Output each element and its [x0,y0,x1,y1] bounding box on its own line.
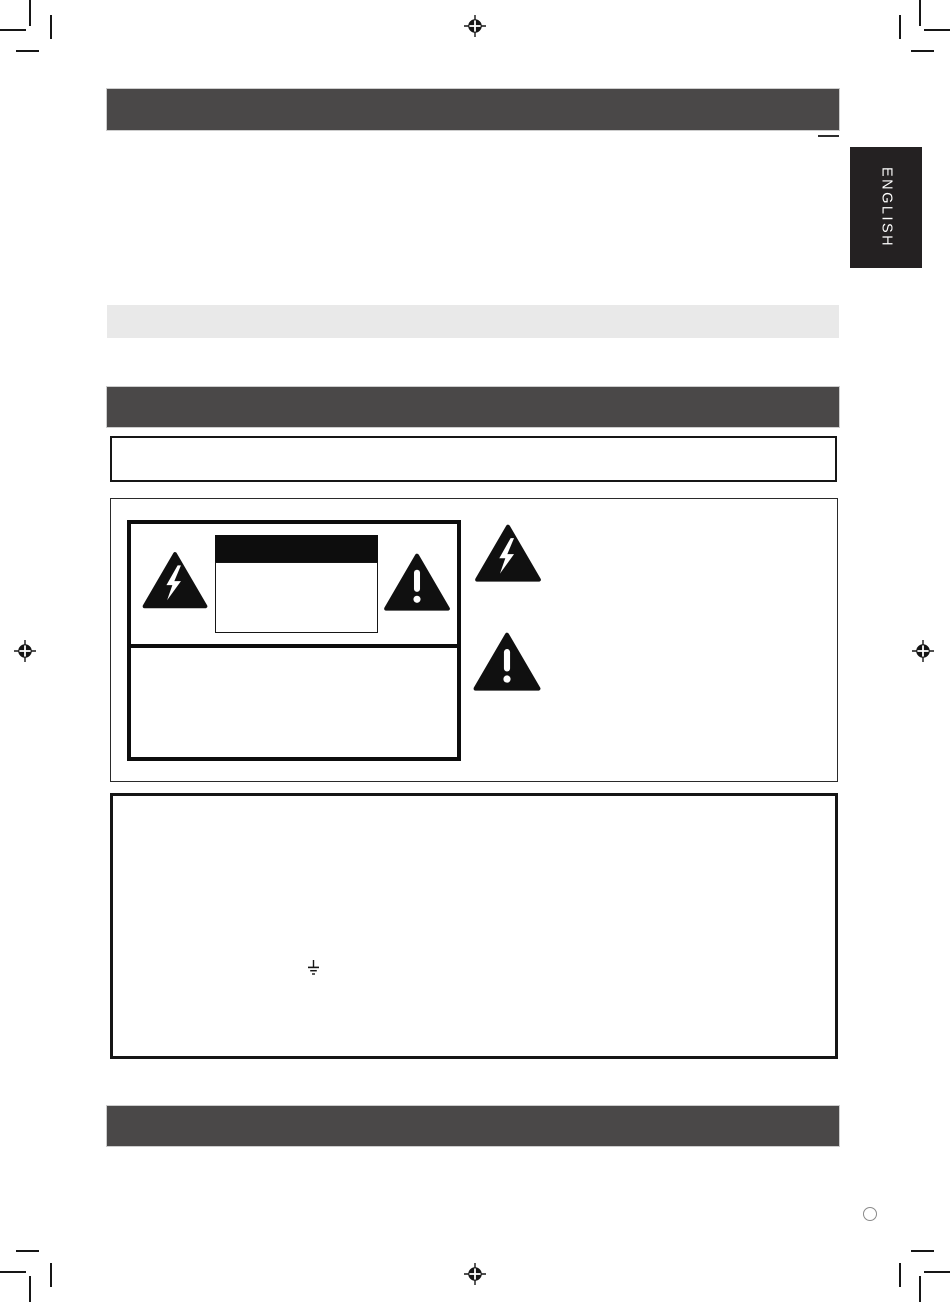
manual-page: ENGLISH [0,0,950,1302]
crop-mark-icon [911,50,934,52]
safety-instructions-box [110,793,838,1059]
crop-mark-icon [50,1263,52,1287]
exclamation-triangle-icon [472,632,542,692]
crop-mark-icon [924,1271,950,1273]
registration-target-icon [464,1263,486,1285]
language-tab-label: ENGLISH [879,167,894,248]
crop-mark-icon [919,1276,921,1302]
crop-mark-icon [924,29,950,31]
section-header-bar-2 [107,387,839,427]
crop-mark-icon [0,29,26,31]
crop-mark-icon [911,1250,934,1252]
exclamation-triangle-icon [382,553,452,612]
section-header-bar-3 [107,1106,839,1146]
registration-target-icon [14,640,36,662]
subsection-bar [107,305,839,338]
crop-mark-icon [16,1250,39,1252]
binding-hole-circle [863,1207,877,1221]
crop-mark-icon [0,1271,26,1273]
crop-mark-icon [50,15,52,39]
lightning-bolt-triangle-icon [473,524,543,583]
crop-mark-icon [899,1263,901,1287]
tab-crop-tick [818,135,839,137]
caution-label-box [215,562,378,633]
caution-box-divider [127,644,461,648]
language-tab-english: ENGLISH [850,147,922,268]
crop-mark-icon [29,1276,31,1302]
crop-mark-icon [919,0,921,26]
crop-mark-icon [16,50,39,52]
crop-mark-icon [899,15,901,39]
earth-ground-icon [307,960,320,976]
registration-target-icon [912,640,934,662]
caution-title-bar [215,535,378,562]
section-header-bar-1 [107,89,839,130]
crop-mark-icon [29,0,31,26]
registration-target-icon [464,15,486,37]
note-box [110,436,837,482]
lightning-bolt-triangle-icon [142,551,208,610]
